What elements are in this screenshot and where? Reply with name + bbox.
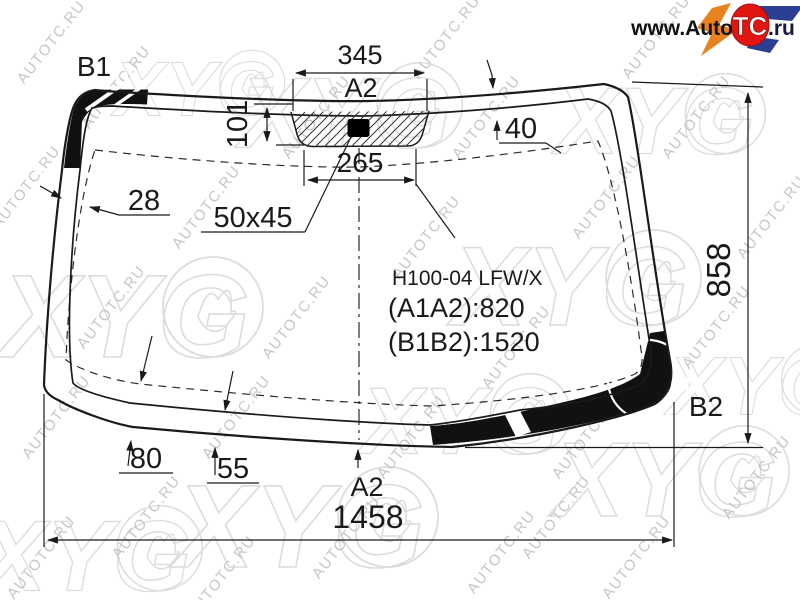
dim-mirror-pad-size: 50x45 xyxy=(213,202,292,234)
dim-top-opening-width: 345 xyxy=(337,40,382,70)
b2-label: B2 xyxy=(689,391,723,422)
windshield-diagram: XYGXYGXYGXYGXYGXYGXYGXYGXYGXYGAUTOTC.RUA… xyxy=(0,0,800,600)
dim-upper-band-depth: 101 xyxy=(222,100,254,148)
a2-top-label: A2 xyxy=(344,73,377,103)
part-info-block: H100-04 LFW/X (A1A2):820 (B1B2):1520 xyxy=(388,267,543,357)
autotc-watermark-text: AUTOTC.RU xyxy=(19,372,94,462)
b1b2-distance: (B1B2):1520 xyxy=(388,327,540,357)
svg-text:XYG: XYG xyxy=(0,251,250,383)
logo-ru-text: .ru xyxy=(768,17,795,40)
autotc-watermark-text: AUTOTC.RU xyxy=(199,372,274,462)
a2-bottom-label: A2 xyxy=(350,472,383,502)
b1-label: B1 xyxy=(77,51,111,82)
part-number: H100-04 LFW/X xyxy=(392,267,543,290)
mirror-pad xyxy=(348,119,370,137)
logo-www-text: www.Auto xyxy=(630,17,733,40)
dim-glass-height: 858 xyxy=(700,242,737,297)
a1a2-distance: (A1A2):820 xyxy=(388,293,525,323)
autotc-watermark-text: AUTOTC.RU xyxy=(259,272,334,362)
windshield-diagram-page: XYGXYGXYGXYGXYGXYGXYGXYGXYGXYGAUTOTC.RUA… xyxy=(0,0,800,600)
autotc-watermark-text: AUTOTC.RU xyxy=(734,172,800,262)
dim-lower-band-a: 80 xyxy=(130,443,162,475)
dim-mirror-base-width: 265 xyxy=(337,147,384,178)
dim-glass-width: 1458 xyxy=(332,499,403,535)
dim-lower-band-b: 55 xyxy=(217,453,249,485)
dim-left-band-width: 28 xyxy=(128,185,160,217)
logo-tc-text: TC xyxy=(733,11,768,41)
autotc-watermark-text: AUTOTC.RU xyxy=(0,142,64,232)
dim-top-band-width: 40 xyxy=(505,113,537,145)
